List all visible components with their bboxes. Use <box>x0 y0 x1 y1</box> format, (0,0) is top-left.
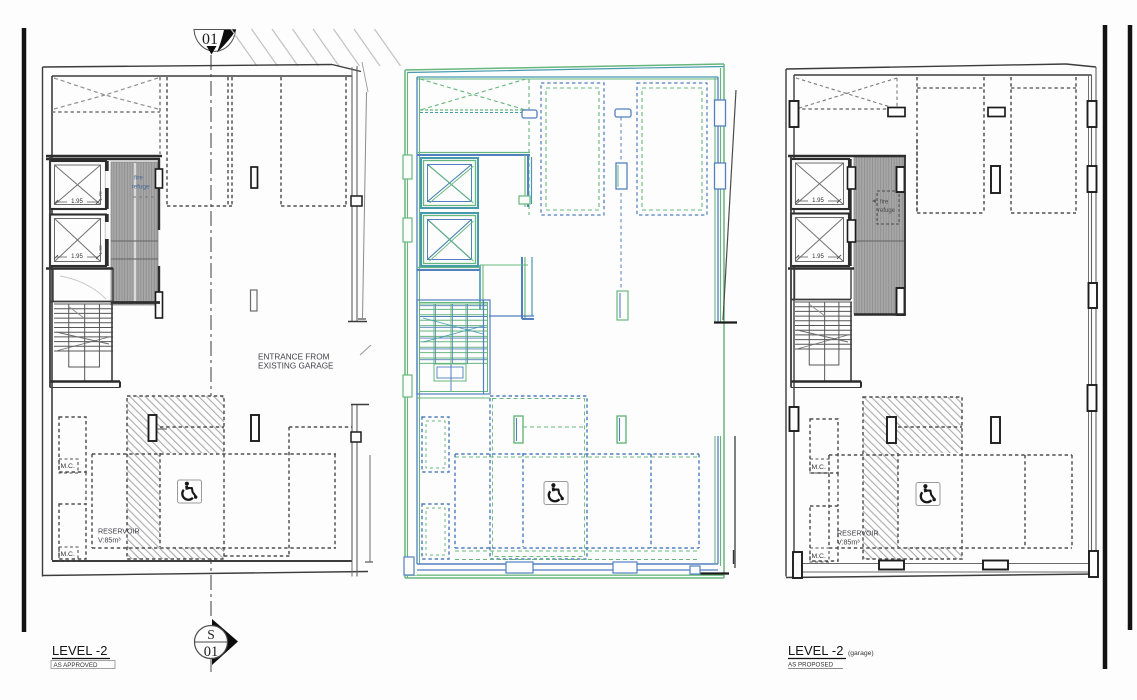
svg-text:RESERVOIR: RESERVOIR <box>98 528 140 536</box>
svg-text:refuge: refuge <box>132 184 151 191</box>
svg-text:M.C.: M.C. <box>812 464 826 471</box>
svg-text:1.95: 1.95 <box>71 199 83 205</box>
svg-text:V:85m³: V:85m³ <box>98 537 121 545</box>
svg-text:S: S <box>207 627 215 642</box>
svg-text:1.95: 1.95 <box>812 198 824 204</box>
svg-text:AS PROPOSED: AS PROPOSED <box>788 662 834 669</box>
svg-text:V:85m³: V:85m³ <box>837 539 860 547</box>
svg-text:1.90: 1.90 <box>98 245 104 255</box>
svg-text:refuge: refuge <box>878 208 896 214</box>
svg-text:fire: fire <box>134 175 143 182</box>
svg-text:M.C.: M.C. <box>61 463 75 470</box>
svg-text:LEVEL -2: LEVEL -2 <box>52 643 108 658</box>
svg-text:(garage): (garage) <box>848 650 874 657</box>
svg-text:LEVEL -2: LEVEL -2 <box>788 643 844 658</box>
svg-text:RESERVOIR: RESERVOIR <box>837 530 879 538</box>
svg-text:M.C.: M.C. <box>61 551 75 558</box>
svg-text:01: 01 <box>204 644 219 660</box>
svg-text:M.C.: M.C. <box>812 553 826 560</box>
svg-text:AS APPROVED: AS APPROVED <box>54 662 99 669</box>
svg-text:01: 01 <box>202 31 218 48</box>
svg-text:ENTRANCE FROM: ENTRANCE FROM <box>258 353 330 362</box>
svg-text:1.95: 1.95 <box>71 254 83 260</box>
svg-text:EXISTING GARAGE: EXISTING GARAGE <box>258 362 334 371</box>
svg-text:1.95: 1.95 <box>812 254 824 260</box>
svg-text:1.70: 1.70 <box>98 191 104 201</box>
svg-text:fire: fire <box>880 200 889 206</box>
